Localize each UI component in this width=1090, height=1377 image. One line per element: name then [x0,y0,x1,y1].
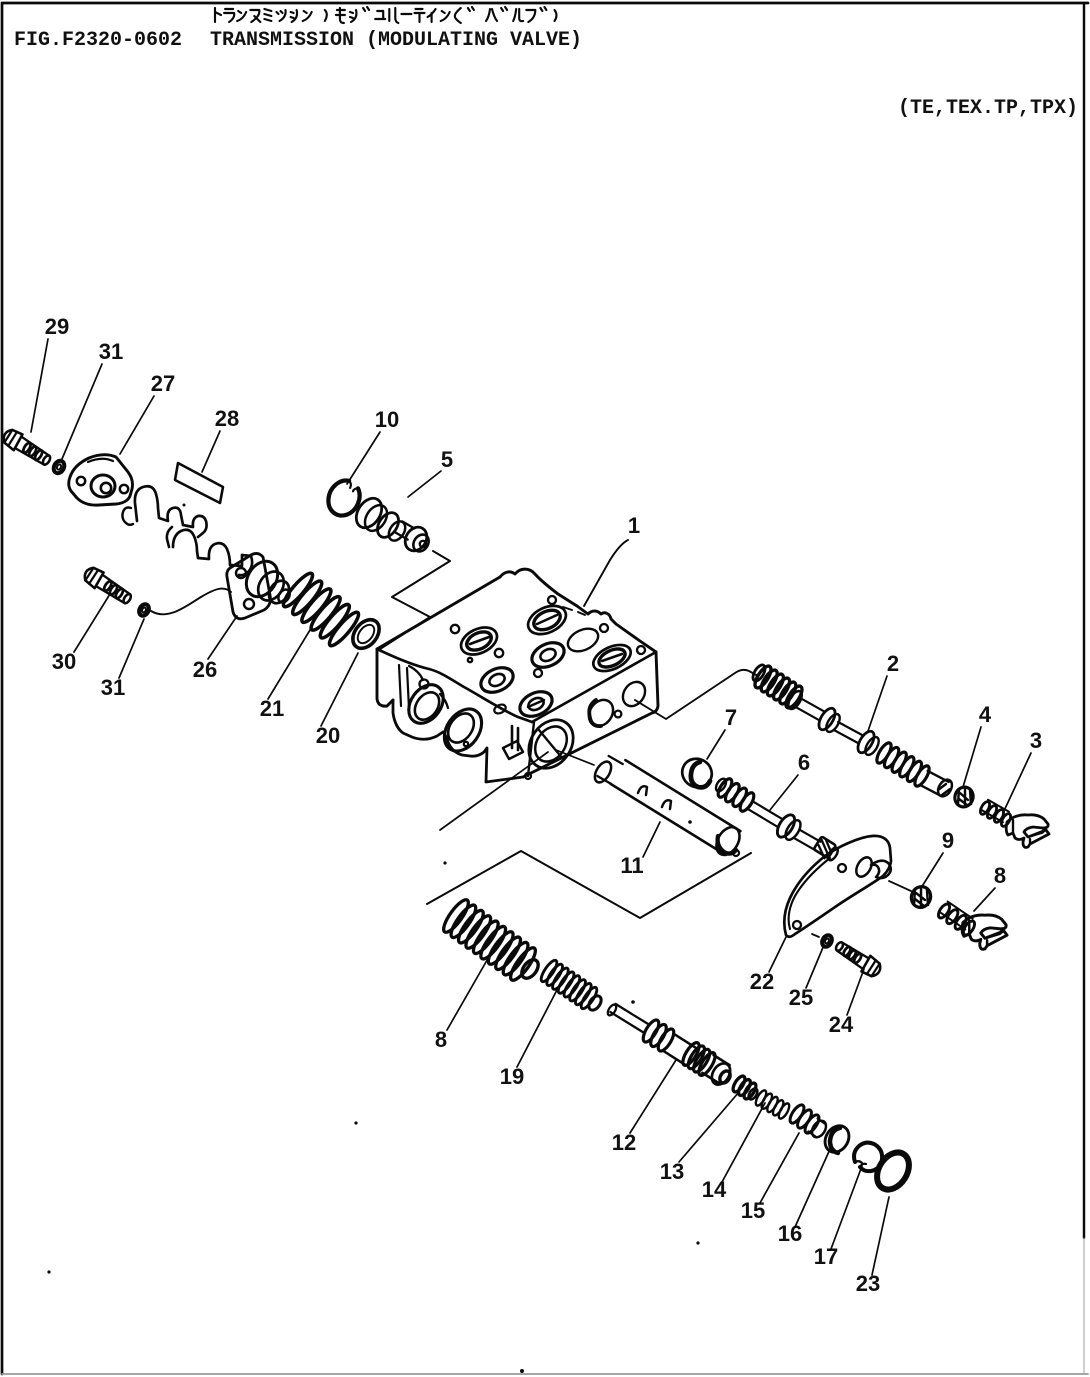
svg-text:31: 31 [99,339,123,364]
svg-text:1: 1 [628,513,640,538]
svg-text:13: 13 [660,1159,684,1184]
svg-text:5: 5 [441,447,453,472]
svg-text:(TE,TEX.TP,TPX): (TE,TEX.TP,TPX) [898,97,1078,120]
svg-text:24: 24 [829,1012,854,1037]
svg-text:26: 26 [193,657,217,682]
svg-text:27: 27 [151,371,175,396]
svg-text:16: 16 [778,1221,802,1246]
svg-text:7: 7 [725,705,737,730]
svg-text:FIG.F2320-0602: FIG.F2320-0602 [14,29,182,52]
svg-text:11: 11 [620,853,643,878]
svg-text:6: 6 [798,750,810,775]
svg-text:10: 10 [375,407,399,432]
svg-text:3: 3 [1030,728,1042,753]
svg-text:31: 31 [101,675,125,700]
svg-text:21: 21 [260,696,284,721]
svg-text:17: 17 [814,1244,838,1269]
svg-text:20: 20 [316,723,340,748]
svg-text:22: 22 [750,969,774,994]
svg-text:2: 2 [887,651,899,676]
svg-text:TRANSMISSION (MODULATING VALVE: TRANSMISSION (MODULATING VALVE) [210,29,582,52]
svg-text:29: 29 [45,314,69,339]
svg-text:8: 8 [435,1027,447,1052]
svg-text:25: 25 [789,985,813,1010]
svg-text:28: 28 [215,406,239,431]
svg-text:12: 12 [612,1130,636,1155]
svg-text:8: 8 [994,863,1006,888]
svg-text:23: 23 [856,1271,880,1296]
svg-text:9: 9 [942,828,954,853]
svg-text:4: 4 [979,702,992,727]
svg-text:19: 19 [500,1064,524,1089]
svg-text:30: 30 [52,649,76,674]
